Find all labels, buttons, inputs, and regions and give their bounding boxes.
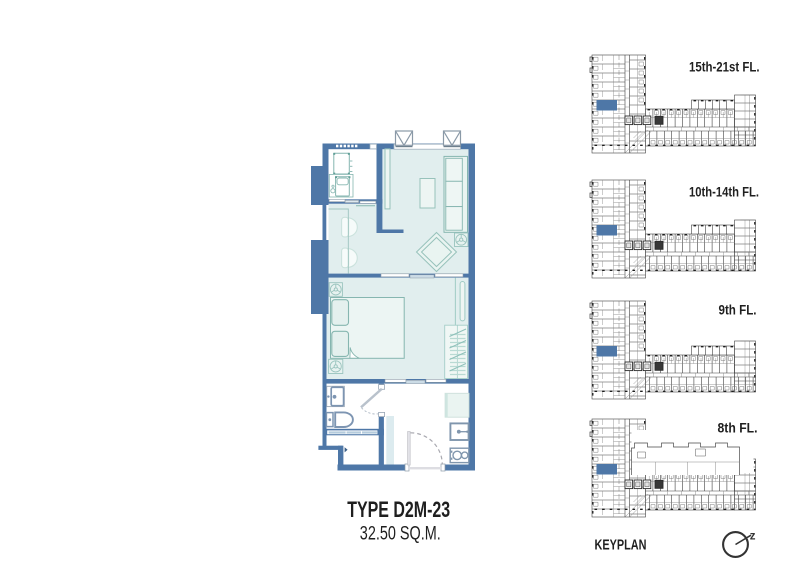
svg-text:TYPE D2M-23: TYPE D2M-23 [347,497,450,522]
svg-text:KEYPLAN: KEYPLAN [595,538,647,554]
svg-text:8th FL.: 8th FL. [718,420,758,436]
svg-text:9th FL.: 9th FL. [719,302,757,318]
svg-text:10th-14th FL.: 10th-14th FL. [689,184,759,200]
svg-text:z: z [750,531,756,543]
svg-text:15th-21st FL.: 15th-21st FL. [689,60,760,76]
svg-text:32.50 SQ.M.: 32.50 SQ.M. [360,523,441,545]
